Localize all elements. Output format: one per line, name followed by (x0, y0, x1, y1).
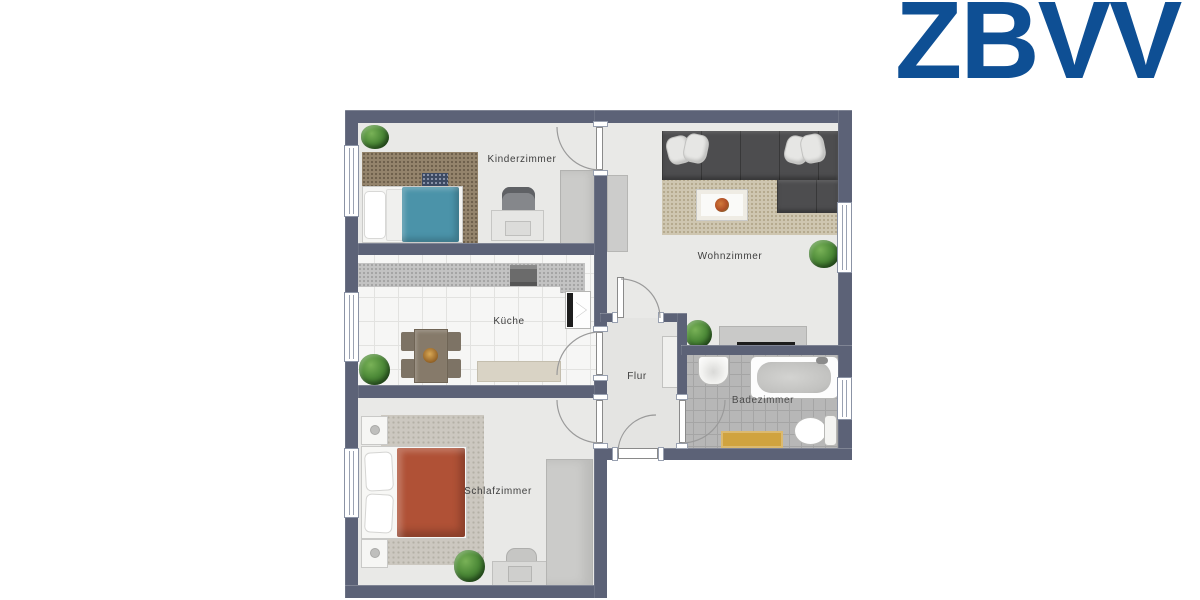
room-label-flur: Flur (607, 371, 667, 382)
sofa-chaise (777, 180, 838, 213)
door-leaf-badezimmer (679, 400, 686, 443)
plant-icon (809, 240, 839, 268)
schlaf-wardrobe (546, 459, 593, 586)
toilet-tank (824, 415, 837, 446)
room-label-kueche: Küche (469, 316, 549, 327)
room-label-schlafzimmer: Schlafzimmer (448, 486, 548, 497)
kitchen-counter (358, 263, 585, 287)
wall-bad-top (681, 345, 852, 355)
room-label-wohnzimmer: Wohnzimmer (680, 251, 780, 262)
kinder-bed-blanket (402, 187, 459, 242)
window (344, 292, 359, 362)
kitchen-bench (477, 361, 561, 382)
door-jamb (658, 312, 664, 323)
door-leaf-kinderzimmer (596, 127, 603, 170)
table-plant (715, 198, 729, 212)
door-jamb (676, 443, 688, 449)
door-leaf-schlafzimmer (596, 400, 603, 443)
plant-icon (361, 125, 389, 149)
window (837, 202, 852, 273)
window (837, 377, 852, 420)
plant-icon (454, 550, 485, 582)
fridge-arrow (575, 302, 586, 318)
nightstand-lamp (370, 425, 380, 435)
dining-chair (447, 359, 461, 378)
dining-chair (401, 359, 415, 378)
nightstand-lamp (370, 548, 380, 558)
door-leaf-wohnzimmer (617, 277, 624, 318)
wall-kinder-kueche (358, 243, 594, 255)
bathtub-faucet (816, 357, 828, 364)
plant-icon (359, 354, 390, 385)
bed-pillow (364, 451, 394, 491)
door-jamb (658, 447, 664, 461)
kitchen-counter-corner (560, 263, 585, 293)
kinder-bed-pillow (364, 191, 386, 239)
wall-flur-right (677, 313, 687, 400)
bed-pillow (364, 493, 394, 533)
kinder-wardrobe (560, 170, 597, 252)
wall-center (594, 170, 607, 332)
kinder-desk-drawer (505, 221, 531, 236)
stove (510, 265, 537, 286)
dresser-drawer (508, 566, 532, 582)
wall-bottom-left-wing (345, 585, 607, 598)
bath-sink (698, 356, 729, 385)
toilet-bowl (794, 417, 827, 445)
fruit-bowl (423, 348, 438, 363)
floor-plan: Kinderzimmer Wohnzimmer Küche Flur Schla… (0, 0, 1200, 600)
dining-chair (447, 332, 461, 351)
window (344, 448, 359, 518)
door-jamb (593, 375, 608, 381)
window (344, 145, 359, 217)
room-label-kinderzimmer: Kinderzimmer (472, 154, 572, 165)
wohnzimmer-cabinet (607, 175, 628, 252)
bathtub-basin (757, 362, 831, 393)
wall-bottom-right-wing (658, 448, 852, 460)
door-jamb (593, 170, 608, 176)
room-label-badezimmer: Badezimmer (713, 395, 813, 406)
wall-center (594, 443, 607, 598)
dining-chair (401, 332, 415, 351)
door-jamb (593, 443, 608, 449)
entrance-door (618, 448, 658, 459)
plant-icon (685, 320, 712, 348)
bath-mat (721, 431, 783, 448)
fridge-door (567, 293, 573, 327)
wall-kueche-schlaf (358, 385, 594, 398)
zbvv-logo: ZBVV (895, 0, 1180, 96)
door-leaf-kueche (596, 332, 603, 375)
